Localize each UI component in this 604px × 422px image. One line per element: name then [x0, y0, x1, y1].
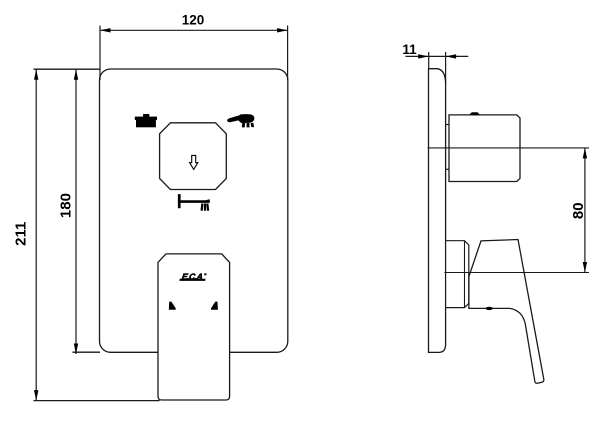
svg-text:180: 180 — [58, 193, 75, 218]
svg-text:80: 80 — [570, 202, 587, 219]
svg-text:211: 211 — [12, 222, 29, 246]
svg-text:11: 11 — [402, 42, 417, 57]
svg-text:120: 120 — [182, 13, 205, 28]
